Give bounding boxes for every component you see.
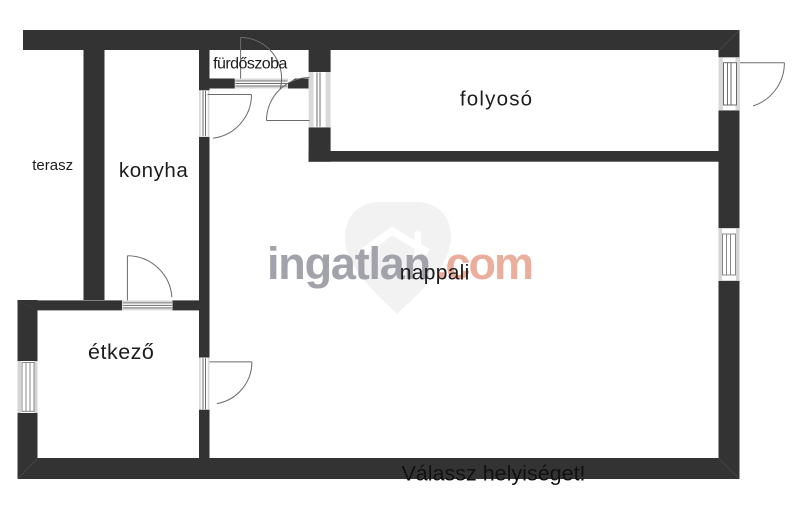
svg-text:fürdőszoba: fürdőszoba (213, 56, 287, 73)
svg-text:étkező: étkező (88, 340, 154, 364)
svg-text:konyha: konyha (119, 159, 188, 182)
svg-text:folyosó: folyosó (460, 88, 533, 111)
svg-text:Válassz helyiséget!: Válassz helyiséget! (401, 461, 585, 485)
svg-text:terasz: terasz (32, 157, 73, 174)
svg-text:nappali: nappali (400, 262, 470, 285)
